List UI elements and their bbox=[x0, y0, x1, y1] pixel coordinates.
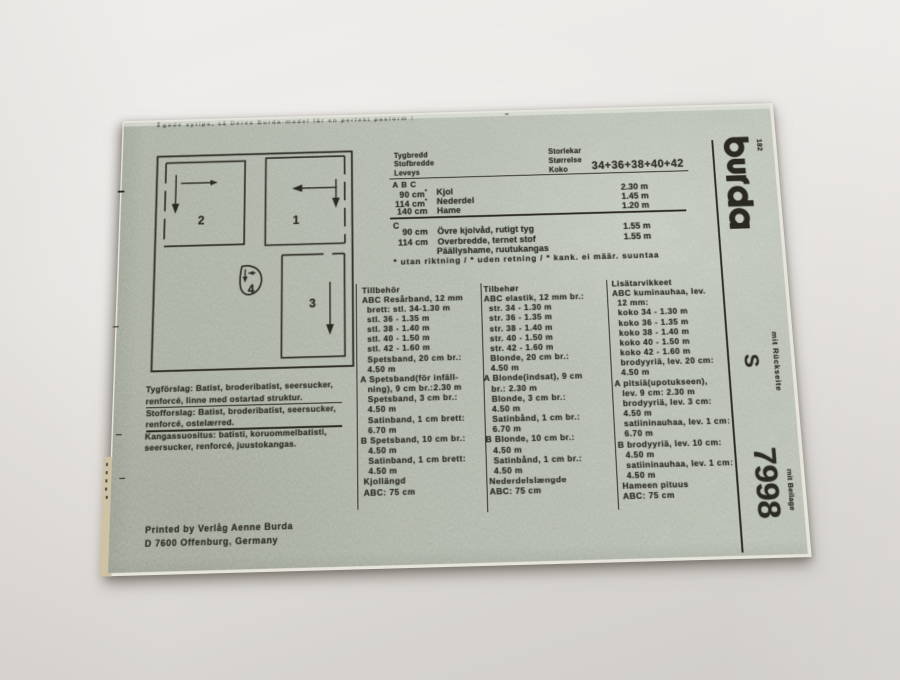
svg-text:3: 3 bbox=[309, 298, 316, 311]
svg-text:1: 1 bbox=[293, 215, 300, 228]
svg-text:2: 2 bbox=[198, 215, 205, 228]
svg-text:4: 4 bbox=[248, 283, 256, 296]
